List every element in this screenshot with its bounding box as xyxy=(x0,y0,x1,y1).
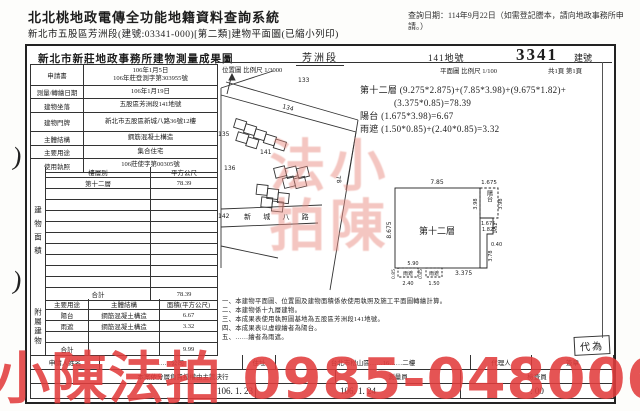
dim-150: 1.50 xyxy=(428,281,439,287)
area-calculation: 第十二層 (9.275*2.875)+(7.85*3.98)+(9.675*1.… xyxy=(360,84,612,136)
col-level: 樓層別 xyxy=(46,167,151,177)
table-row: 主要用途 集合住宅 xyxy=(31,145,217,158)
application-number: 106年莊登測字第303955號 xyxy=(113,75,188,83)
row-label: 建物坐落 xyxy=(31,99,84,112)
row-value: 集合住宅 xyxy=(84,146,217,158)
table-row xyxy=(46,199,217,210)
table-row xyxy=(46,232,217,243)
row-value: 鋼筋混凝土構造 xyxy=(84,132,217,145)
table-header-row: 樓層別 平方公尺 xyxy=(46,167,217,177)
calc-line-floor2: (3.375*0.85)=78.39 xyxy=(360,97,612,110)
cadastral-query-page: 北北桃地政電傳全功能地籍資料查詢系統 查詢日期：114年9月22日（如需登記謄本… xyxy=(0,0,640,411)
floor-area: 78.39 xyxy=(151,178,217,188)
parcel-label-136: 136 xyxy=(224,165,236,172)
dim-top-right: 1.675 xyxy=(481,180,497,186)
dim-right3: 3.78 xyxy=(488,250,494,261)
col-area: 面積(平方公尺) xyxy=(160,299,217,309)
note-3: 三、本成果表使用執照圖基地為五股區芳洲段141地號。 xyxy=(222,315,600,324)
row-label: 測量/轉繪日期 xyxy=(31,86,84,98)
table-row xyxy=(46,210,217,221)
table-row xyxy=(46,265,217,276)
dim-left: 8.675 xyxy=(386,221,393,238)
document-subtitle: 新北市五股區芳洲段(建號:03341-000)[第二類]建物平面圖(已縮小列印) xyxy=(28,26,339,40)
dim-3375: 3.375 xyxy=(455,270,472,277)
table-row: 測量/轉繪日期 106年1月19日 xyxy=(31,85,217,98)
auction-watermark: 小陳法拍 0985-048006 xyxy=(0,334,640,411)
room-label: 第十二層 xyxy=(419,225,455,236)
note-4: 四、本成果表以虛線繪者為陽台。 xyxy=(222,324,600,333)
table-header-row: 主要用途 主體結構 面積(平方公尺) xyxy=(46,299,217,309)
row-label: 主體結構 xyxy=(31,132,84,145)
dim-240: 2.40 xyxy=(402,281,413,287)
note-1: 一、本建物平面圖、位置圖及建物面積係依使用執照及施工平面圖轉繪計算。 xyxy=(222,297,600,306)
system-title: 北北桃地政電傳全功能地籍資料查詢系統 xyxy=(28,7,280,26)
row-label: 申請書 xyxy=(31,65,84,85)
table-row: 第十二層 78.39 xyxy=(46,177,217,188)
table-row xyxy=(46,188,217,199)
row-value: 106年1月19日 xyxy=(84,86,217,98)
calc-line-balcony: 陽台 (1.675*3.98)=6.67 xyxy=(360,110,612,123)
table-row: 申請書 106年1月5日 106年莊登測字第303955號 xyxy=(31,65,217,85)
application-date: 106年1月5日 xyxy=(133,67,169,75)
header-divider xyxy=(216,62,612,63)
row-label: 主要用途 xyxy=(31,146,84,158)
dim-right1: 1.52 xyxy=(493,222,499,233)
annex-use: 雨遮 xyxy=(46,321,89,331)
dim-590: 5.90 xyxy=(407,261,418,267)
query-date: 查詢日期：114年9月22日（如需登記謄本，請向地政事務所申請。） xyxy=(408,10,636,32)
table-row: 雨遮 鋼筋混凝土構造 3.32 xyxy=(46,320,217,331)
table-row: 陽台 鋼筋混凝土構造 6.67 xyxy=(46,309,217,320)
row-label: 建物門牌 xyxy=(31,113,84,131)
col-use: 主要用途 xyxy=(46,299,89,309)
table-row: 建物坐落 五股區芳洲段141地號 xyxy=(31,98,217,112)
note-2: 二、本建物係十九層建物。 xyxy=(222,306,600,315)
canopy1-label: 雨遮 xyxy=(403,270,413,277)
floor-plan: 第十二層 陽台 雨遮 雨遮 7.85 1.675 8.675 3.98 3.98… xyxy=(385,172,610,304)
annex-use: 陽台 xyxy=(46,310,89,320)
calc-line-floor: 第十二層 (9.275*2.875)+(7.85*3.98)+(9.675*1.… xyxy=(360,84,612,97)
dim-right2: 0.40 xyxy=(491,242,502,248)
calc-line-canopy: 雨遮 (1.50*0.85)+(2.40*0.85)=3.32 xyxy=(360,123,612,136)
balcony-label: 陽台 xyxy=(486,189,493,203)
annex-struct: 鋼筋混凝土構造 xyxy=(89,321,160,331)
annex-area: 3.32 xyxy=(160,321,217,331)
floor-plan-labels: 第十二層 陽台 雨遮 雨遮 7.85 1.675 8.675 3.98 3.98… xyxy=(386,179,504,287)
floor-level: 第十二層 xyxy=(46,178,151,188)
parcel-label-135: 135 xyxy=(218,131,230,138)
dim-balcony-right: 3.98 xyxy=(498,198,504,209)
parcel-label-133: 133 xyxy=(298,77,310,84)
canopy2-label: 雨遮 xyxy=(429,270,439,277)
col-area: 平方公尺 xyxy=(151,167,217,177)
col-struct: 主體結構 xyxy=(89,299,160,309)
floor-area-side-label: 建物面積 xyxy=(30,167,46,300)
annex-area: 6.67 xyxy=(160,310,217,320)
floor-area-table: 樓層別 平方公尺 第十二層 78.39 合計 78.39 xyxy=(45,167,218,301)
parcel-label-142: 142 xyxy=(218,213,230,220)
page-info: 共1頁 第1頁 xyxy=(548,65,582,75)
row-value: 106年1月5日 106年莊登測字第303955號 xyxy=(84,65,217,85)
margin-brace-bottom: ) xyxy=(11,266,24,297)
table-row: 主體結構 鋼筋混凝土構造 xyxy=(31,131,217,145)
table-row: 建物門牌 新北市五股區新城八路36號12樓 xyxy=(31,112,217,131)
section-name: 芳洲段 xyxy=(296,49,344,66)
table-row xyxy=(46,221,217,232)
dim-top: 7.85 xyxy=(430,179,444,186)
annex-struct: 鋼筋混凝土構造 xyxy=(89,310,160,320)
parcel-label-134: 134 xyxy=(281,103,294,113)
row-value: 新北市五股區新城八路36號12樓 xyxy=(84,113,217,131)
dim-085a: 0.85 xyxy=(391,269,397,279)
table-row xyxy=(46,243,217,254)
row-value: 五股區芳洲段141地號 xyxy=(84,99,217,112)
table-row xyxy=(46,276,217,287)
seal-watermark: 小陳法拍 xyxy=(262,136,382,262)
dim-balcony-left: 3.98 xyxy=(473,198,479,209)
dim-085b: 0.85 xyxy=(418,269,424,279)
building-info-table: 申請書 106年1月5日 106年莊登測字第303955號 測量/轉繪日期 10… xyxy=(30,64,218,173)
margin-brace-top: ) xyxy=(11,142,24,173)
table-row xyxy=(46,254,217,265)
plan-scale: 平面圖 比例尺 1/100 xyxy=(440,65,497,75)
